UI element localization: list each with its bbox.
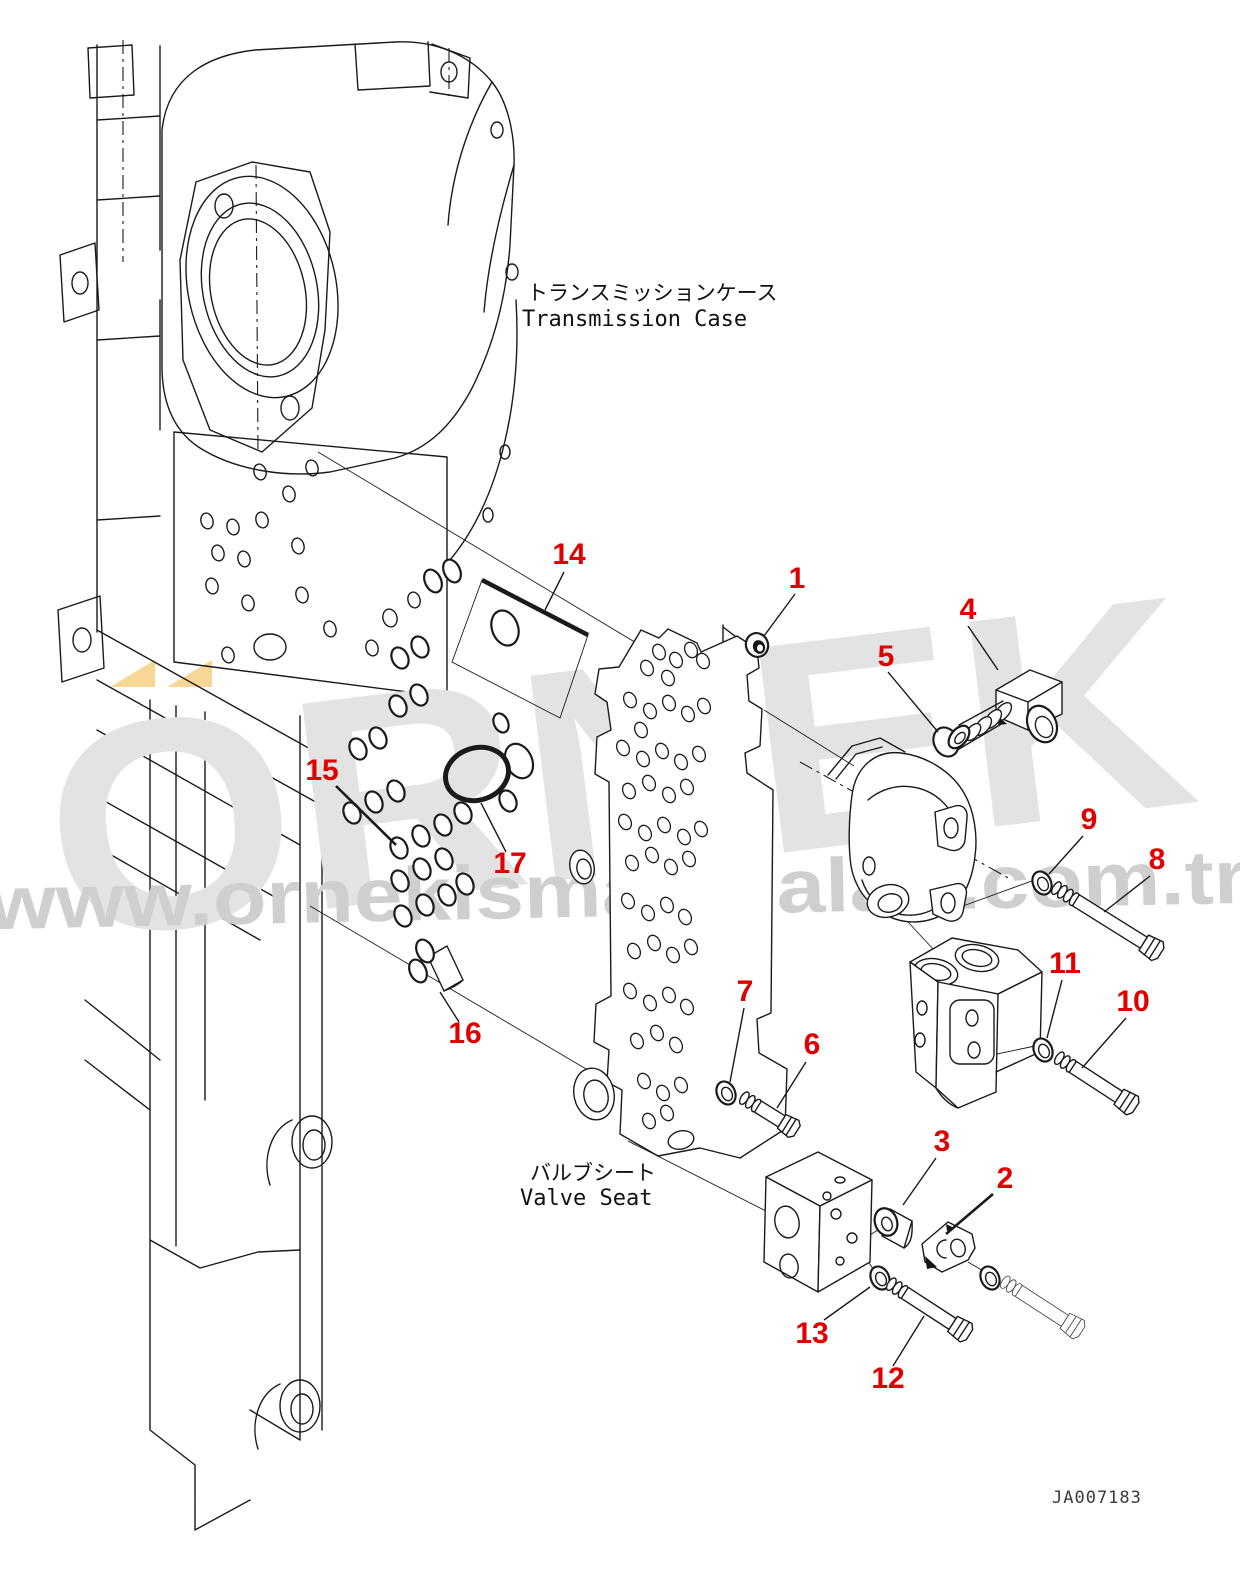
callout-14: 14 [552,538,586,571]
washer-plain [977,1263,1003,1292]
callout-1: 1 [789,562,806,595]
washer-11 [1030,1035,1056,1064]
transmission-case-label-ja: トランスミッションケース [527,281,778,305]
callout-6: 6 [804,1028,821,1061]
bolt-reference [996,1271,1087,1341]
parts-diagram-canvas: ORNEK www.ornekismakinalari.com.tr [0,0,1240,1595]
transmission-case-label-en: Transmission Case [522,307,747,332]
valve-seat-label-en: Valve Seat [520,1186,652,1211]
document-number: JA007183 [1052,1488,1142,1508]
callout-13: 13 [795,1317,828,1350]
valve-block [910,938,1042,1108]
callout-12: 12 [871,1362,904,1395]
callout-3: 3 [934,1125,951,1158]
callout-17: 17 [493,847,526,880]
callout-16: 16 [448,1017,481,1050]
callout-2: 2 [997,1162,1014,1195]
valve-seat-label-ja: バルブシート [530,1161,656,1185]
callout-11: 11 [1049,947,1081,980]
bolt-10 [1050,1047,1141,1117]
callout-10: 10 [1116,985,1149,1018]
bushing-3 [871,1205,912,1248]
callout-9: 9 [1081,803,1098,836]
callout-4: 4 [960,593,977,626]
bolt-12 [882,1273,975,1344]
callout-5: 5 [878,640,895,673]
parts-diagram-page: ORNEK www.ornekismakinalari.com.tr [0,0,1240,1595]
valve-seat-block [764,1152,872,1292]
callout-8: 8 [1149,843,1166,876]
retainer-2 [922,1222,975,1272]
callout-7: 7 [737,975,754,1008]
callout-15: 15 [305,754,338,787]
